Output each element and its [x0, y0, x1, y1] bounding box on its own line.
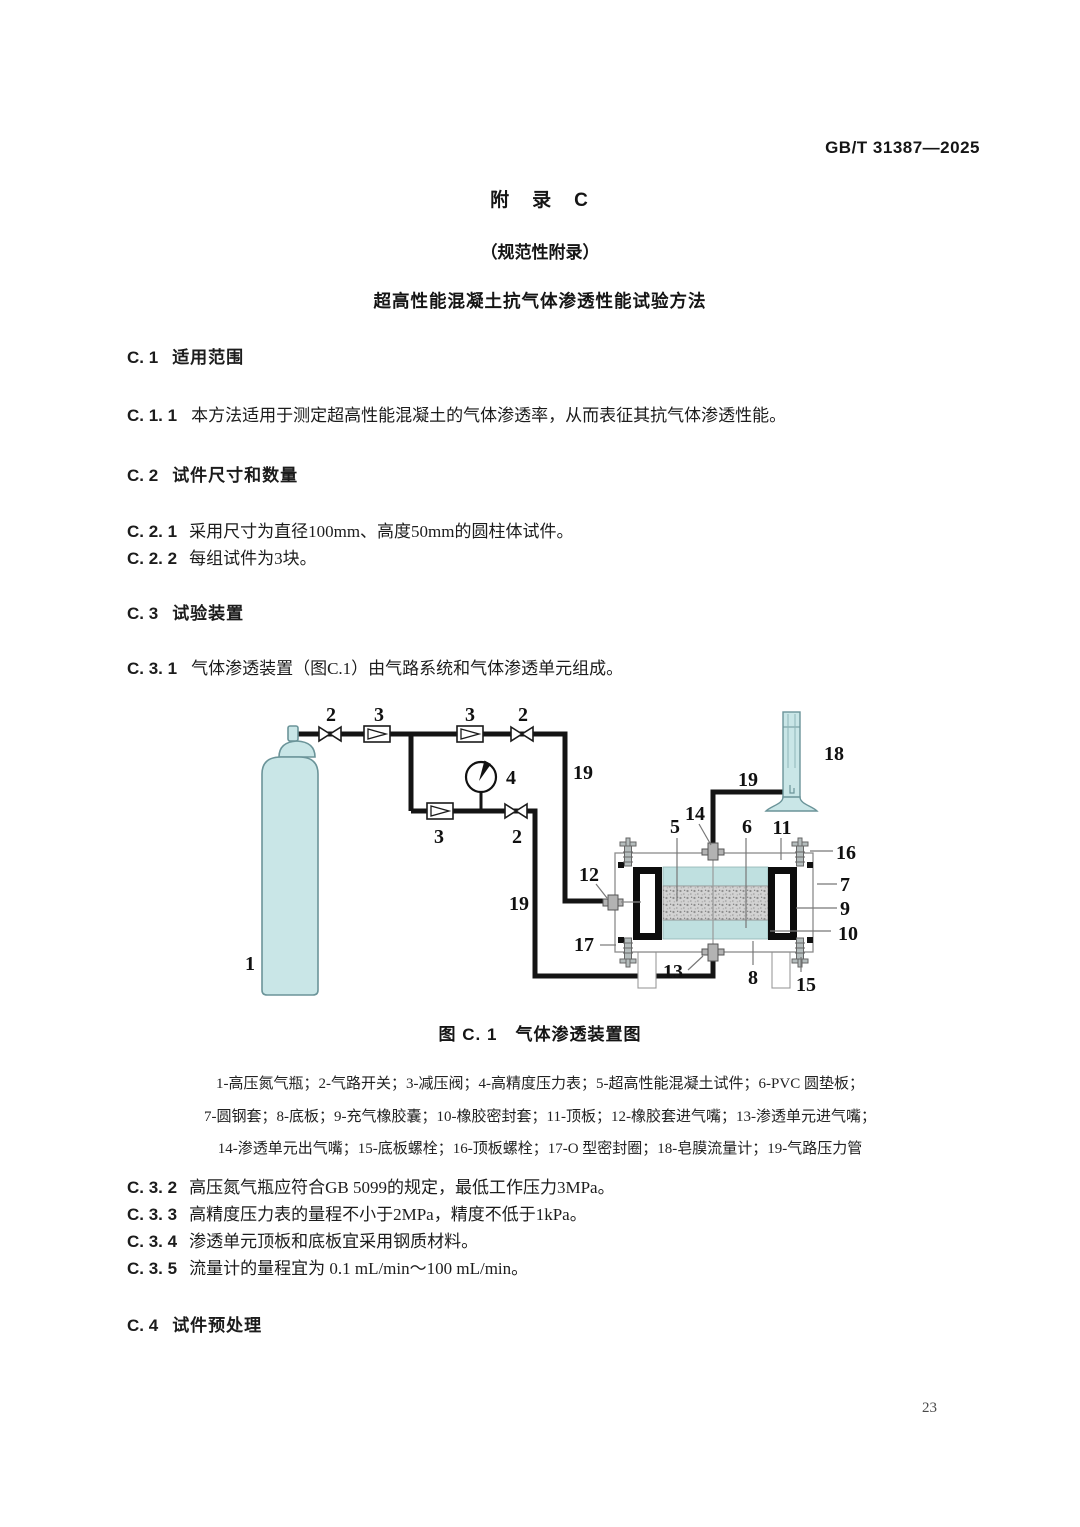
figure-label-2c: 2 [512, 826, 522, 848]
figure-label-8: 8 [748, 967, 758, 989]
clause-number: C. 3 [127, 604, 158, 623]
clause-c2-items: C. 2. 1采用尺寸为直径100mm、高度50mm的圆柱体试件。 C. 2. … [127, 518, 957, 572]
clause-c2-heading: C. 2试件尺寸和数量 [127, 461, 957, 486]
appendix-type: （规范性附录） [0, 238, 1080, 263]
clause-c3-5: C. 3. 5流量计的量程宜为 0.1 mL/min～100 mL/min。 [127, 1255, 957, 1282]
clause-c2-2: C. 2. 2每组试件为3块。 [127, 545, 957, 572]
figure-label-13: 13 [663, 961, 683, 983]
figure-label-17: 17 [574, 934, 594, 956]
clause-c3-1: C. 3. 1气体渗透装置（图C.1）由气路系统和气体渗透单元组成。 [127, 654, 957, 679]
figure-label-11: 11 [773, 817, 792, 839]
clause-number: C. 2 [127, 466, 158, 485]
standard-code: GB/T 31387—2025 [825, 138, 980, 158]
clause-c3-items: C. 3. 2高压氮气瓶应符合GB 5099的规定，最低工作压力3MPa。 C.… [127, 1174, 957, 1282]
steel-sleeve-left [637, 871, 659, 937]
steel-sleeve-right [772, 871, 794, 937]
clause-title: 适用范围 [172, 348, 244, 367]
clause-number: C. 3. 1 [127, 659, 177, 678]
figure-label-15: 15 [796, 974, 816, 996]
figure-label-2b: 2 [518, 704, 528, 726]
concrete-specimen [663, 886, 768, 920]
figure-label-1: 1 [245, 953, 255, 975]
document-page: GB/T 31387—2025 附 录 C （规范性附录） 超高性能混凝土抗气体… [0, 0, 1080, 1527]
figure-label-3b: 3 [465, 704, 475, 726]
figure-label-19c: 19 [738, 769, 758, 791]
clause-c3-heading: C. 3试验装置 [127, 599, 957, 624]
clause-text: 本方法适用于测定超高性能混凝土的气体渗透率，从而表征其抗气体渗透性能。 [191, 406, 786, 425]
clause-title: 试件预处理 [172, 1316, 262, 1335]
pvc-pad-top [663, 867, 768, 886]
figure-label-7: 7 [840, 874, 850, 896]
figure-label-14: 14 [685, 803, 705, 825]
figure-label-2a: 2 [326, 704, 336, 726]
clause-title: 试验装置 [172, 604, 244, 623]
method-title: 超高性能混凝土抗气体渗透性能试验方法 [0, 288, 1080, 313]
figure-label-18: 18 [824, 743, 844, 765]
permeation-cell [603, 838, 813, 988]
figure-label-16: 16 [836, 842, 856, 864]
pressure-gauge [466, 761, 496, 793]
figure-label-12: 12 [579, 864, 599, 886]
page-number: 23 [922, 1400, 937, 1417]
legend-line-1: 1-高压氮气瓶；2-气路开关；3-减压阀；4-高精度压力表；5-超高性能混凝土试… [90, 1068, 990, 1101]
soap-film-flow-meter [766, 712, 817, 811]
appendix-title: 附 录 C [0, 185, 1080, 212]
cell-leg-left [638, 952, 656, 988]
figure-label-3c: 3 [434, 826, 444, 848]
clause-c1-1: C. 1. 1本方法适用于测定超高性能混凝土的气体渗透率，从而表征其抗气体渗透性… [127, 401, 957, 426]
clause-c3-3: C. 3. 3高精度压力表的量程不小于2MPa，精度不低于1kPa。 [127, 1201, 957, 1228]
clause-number: C. 1. 1 [127, 406, 177, 425]
cell-leg-right [772, 952, 790, 988]
figure-c1-diagram: 1 2 3 3 2 4 3 2 19 19 19 5 14 6 11 16 7 … [235, 696, 880, 1014]
figure-legend: 1-高压氮气瓶；2-气路开关；3-减压阀；4-高精度压力表；5-超高性能混凝土试… [90, 1068, 990, 1166]
gas-switch-valves [319, 727, 533, 818]
figure-label-10: 10 [838, 923, 858, 945]
nitrogen-cylinder [262, 726, 318, 995]
clause-c4-heading: C. 4试件预处理 [127, 1311, 957, 1336]
figure-label-4: 4 [506, 767, 516, 789]
clause-c2-1: C. 2. 1采用尺寸为直径100mm、高度50mm的圆柱体试件。 [127, 518, 957, 545]
clause-number: C. 4 [127, 1316, 158, 1335]
clause-text: 气体渗透装置（图C.1）由气路系统和气体渗透单元组成。 [191, 659, 623, 678]
legend-line-3: 14-渗透单元出气嘴；15-底板螺栓；16-顶板螺栓；17-O 型密封圈；18-… [90, 1133, 990, 1166]
clause-c3-4: C. 3. 4渗透单元顶板和底板宜采用钢质材料。 [127, 1228, 957, 1255]
figure-label-3a: 3 [374, 704, 384, 726]
figure-caption: 图 C. 1 气体渗透装置图 [0, 1020, 1080, 1045]
clause-c1-heading: C. 1适用范围 [127, 343, 957, 368]
figure-label-19a: 19 [573, 762, 593, 784]
figure-label-6: 6 [742, 816, 752, 838]
figure-label-19b: 19 [509, 893, 529, 915]
pvc-pad-bottom [663, 920, 768, 939]
figure-label-9: 9 [840, 898, 850, 920]
figure-label-5: 5 [670, 816, 680, 838]
pressure-reducing-valves [364, 726, 483, 819]
clause-number: C. 1 [127, 348, 158, 367]
clause-title: 试件尺寸和数量 [172, 466, 298, 485]
clause-c3-2: C. 3. 2高压氮气瓶应符合GB 5099的规定，最低工作压力3MPa。 [127, 1174, 957, 1201]
legend-line-2: 7-圆钢套；8-底板；9-充气橡胶囊；10-橡胶密封套；11-顶板；12-橡胶套… [90, 1101, 990, 1134]
